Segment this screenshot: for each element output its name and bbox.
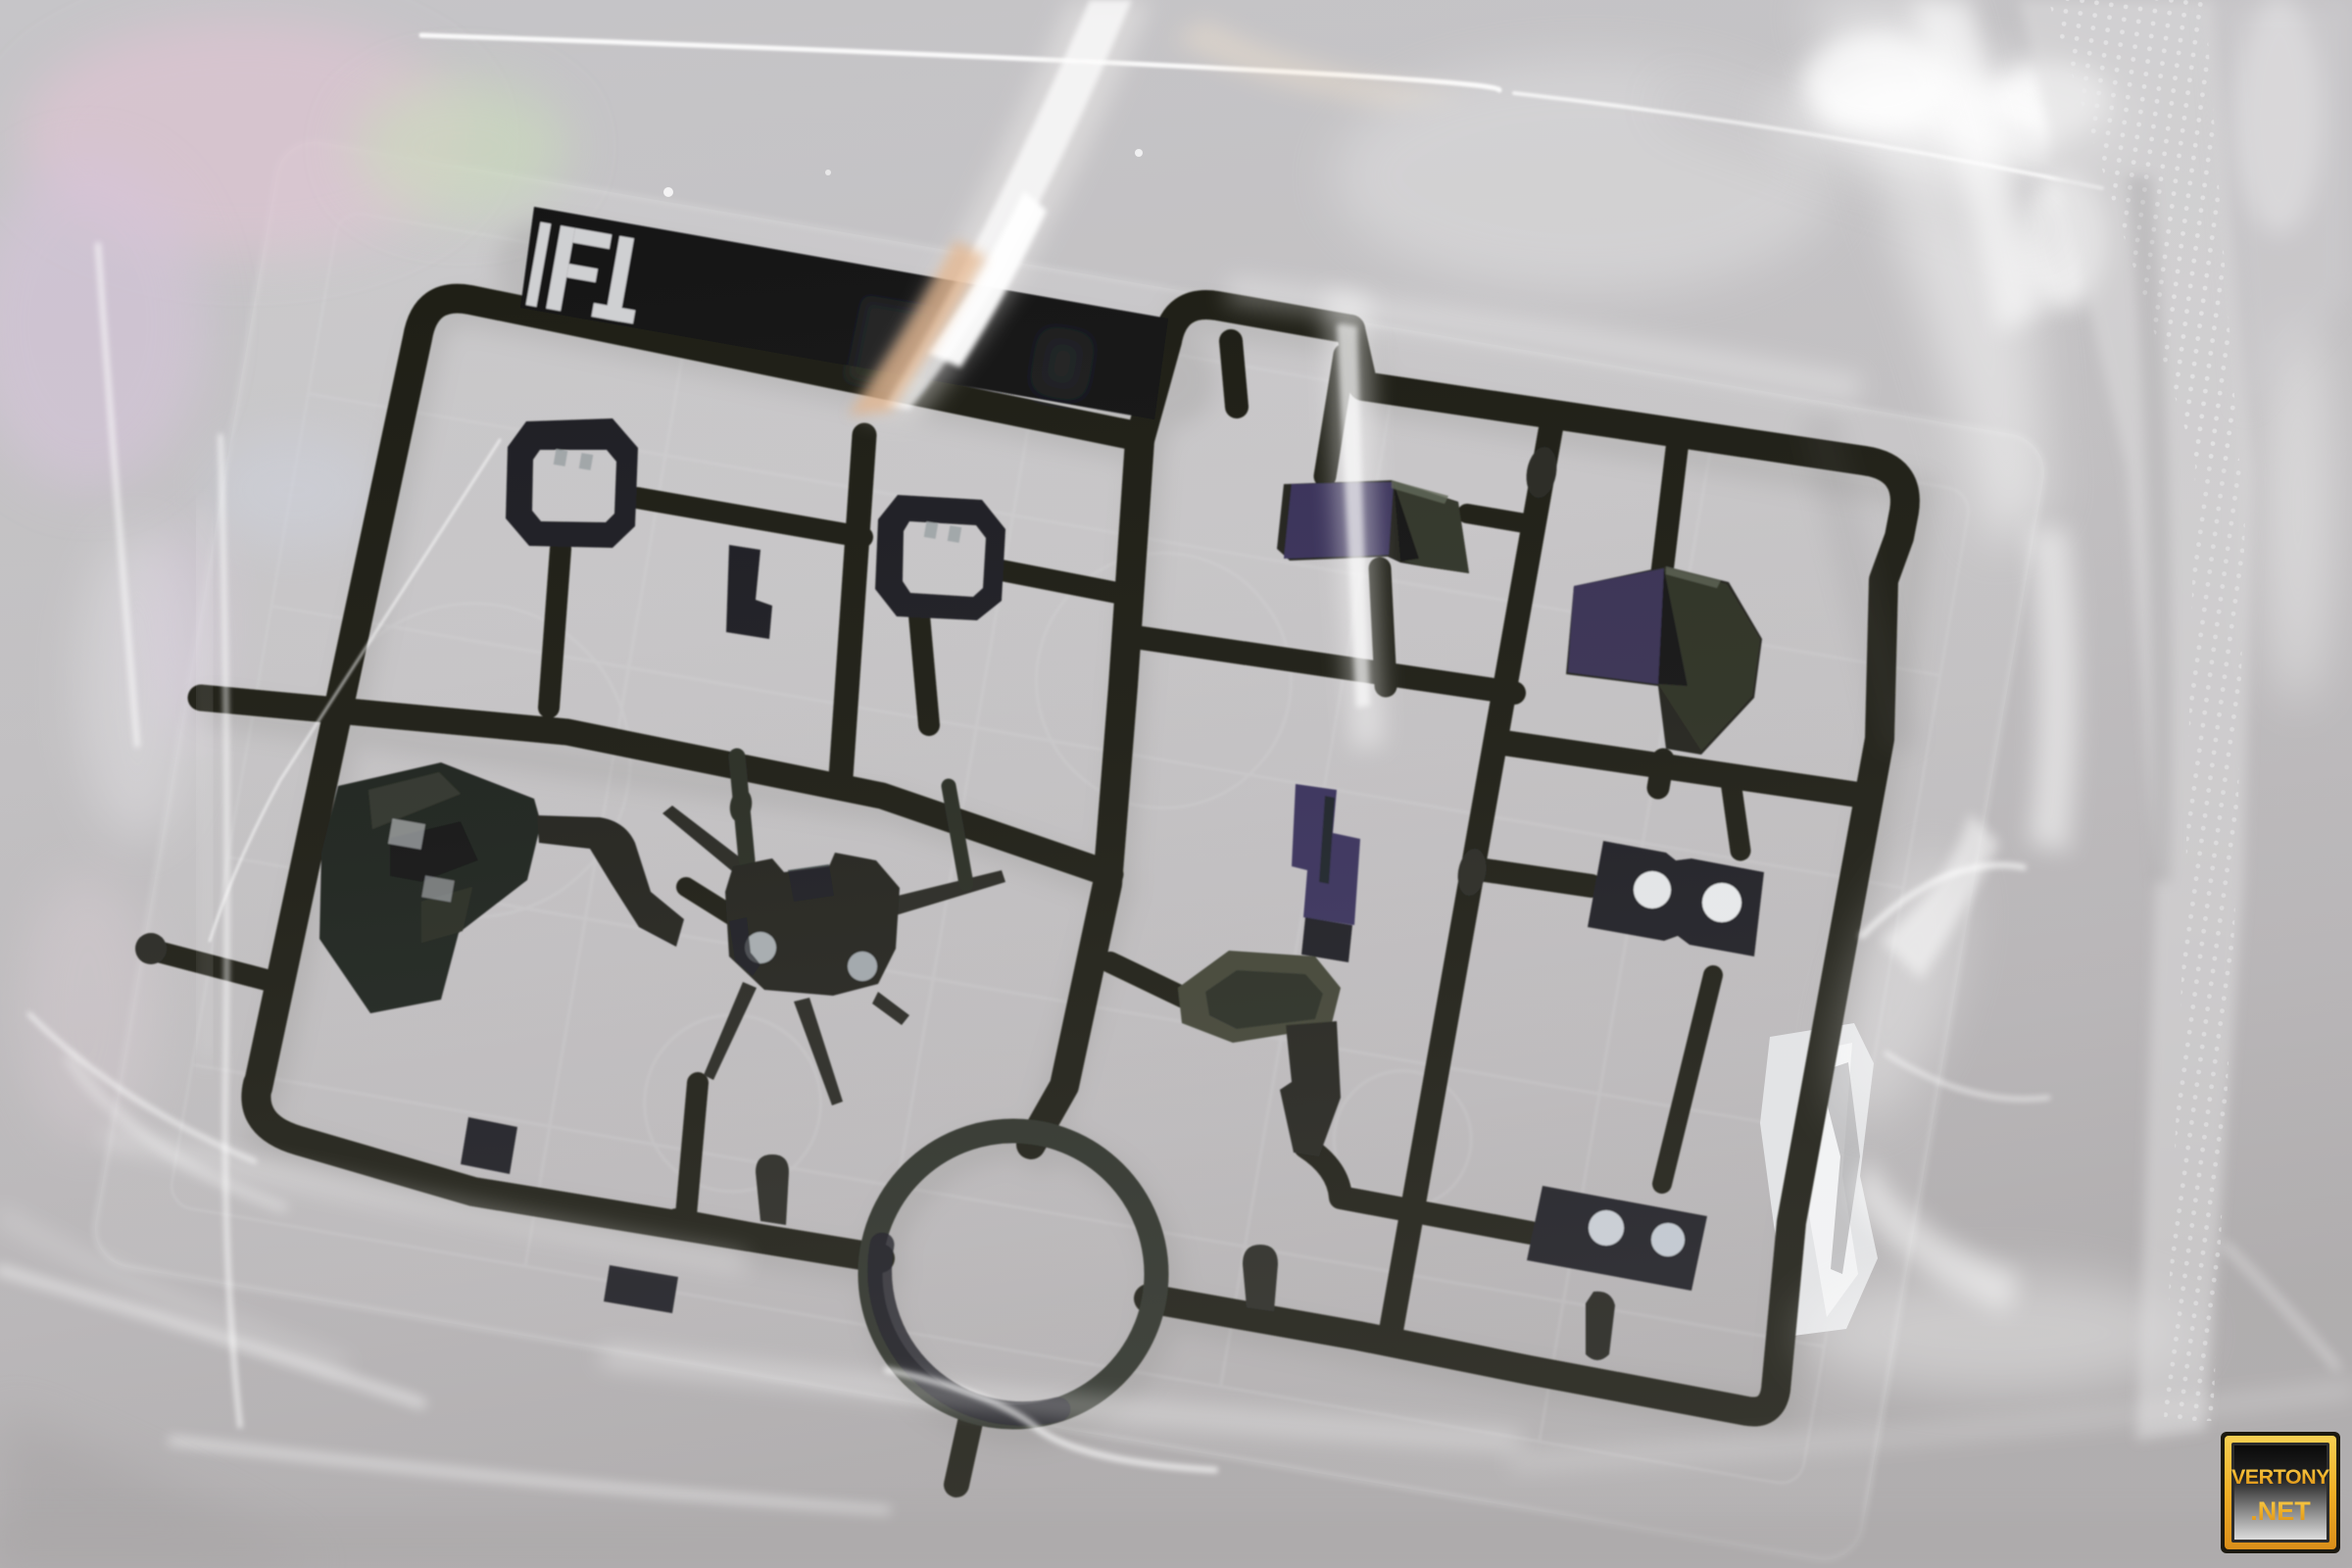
svg-text:.NET: .NET — [2250, 1496, 2311, 1526]
svg-text:VERTONY: VERTONY — [2231, 1465, 2329, 1489]
